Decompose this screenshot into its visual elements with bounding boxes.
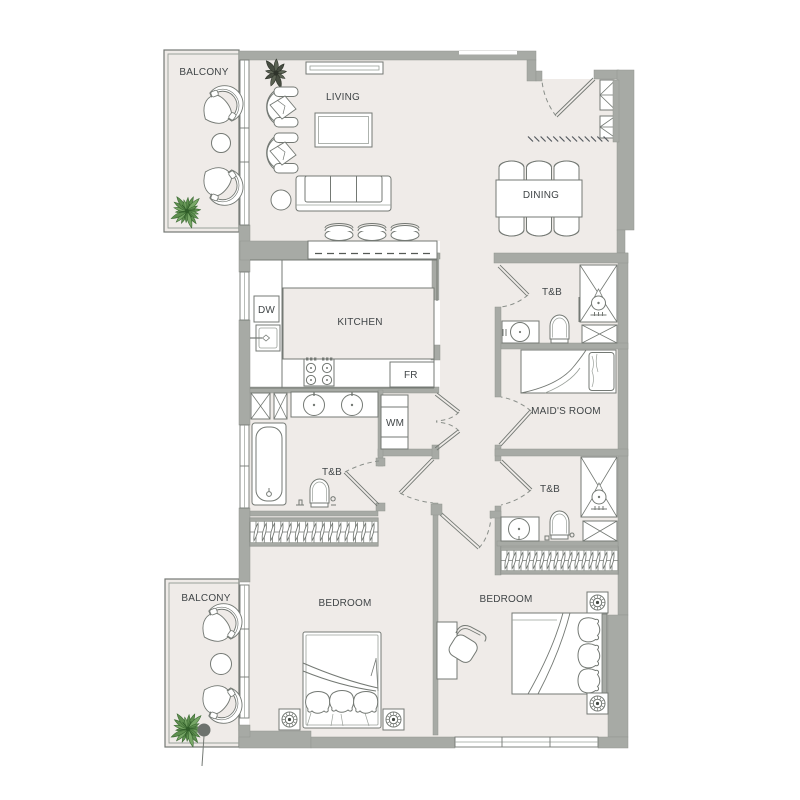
svg-text:BEDROOM: BEDROOM <box>479 594 532 605</box>
svg-text:BALCONY: BALCONY <box>179 67 228 78</box>
svg-text:KITCHEN: KITCHEN <box>337 317 382 328</box>
svg-text:T&B: T&B <box>540 484 560 495</box>
svg-text:MAID'S ROOM: MAID'S ROOM <box>531 406 601 417</box>
svg-text:T&B: T&B <box>322 467 342 478</box>
svg-text:DW: DW <box>258 305 275 316</box>
svg-text:DINING: DINING <box>523 190 559 201</box>
svg-text:T&B: T&B <box>542 287 562 298</box>
svg-text:LIVING: LIVING <box>326 92 360 103</box>
svg-text:BALCONY: BALCONY <box>181 593 230 604</box>
svg-text:BEDROOM: BEDROOM <box>318 598 371 609</box>
svg-text:WM: WM <box>386 418 404 429</box>
svg-text:FR: FR <box>404 370 418 381</box>
